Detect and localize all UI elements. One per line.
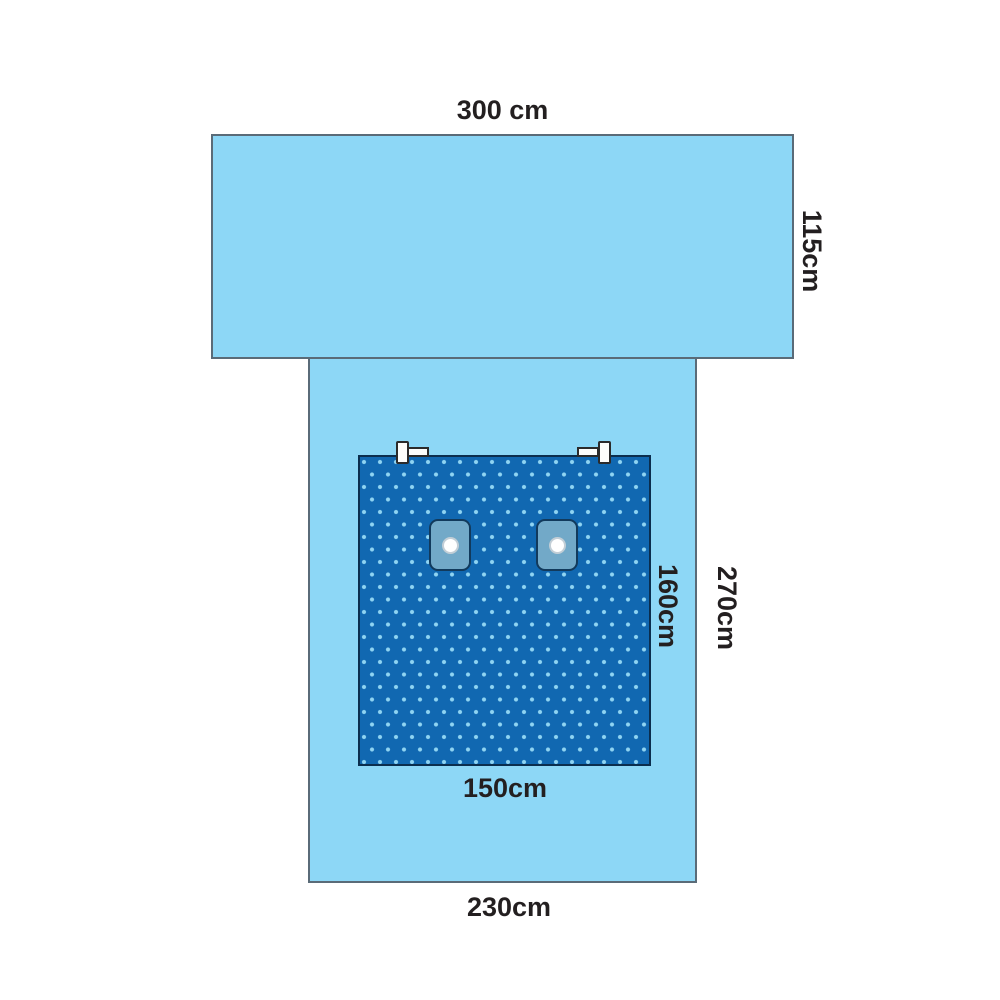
drape-dimension-diagram: 300 cm 115cm 270cm 160cm 150cm 230cm xyxy=(0,0,1000,1000)
dim-label-body-sheet-height: 270cm xyxy=(712,558,742,658)
tube-holder-clip-right-bar-icon xyxy=(577,447,599,457)
drape-top-sheet xyxy=(211,134,794,359)
dim-label-top-sheet-height: 115cm xyxy=(797,201,827,301)
fenestration-hole-right xyxy=(549,537,566,554)
dim-label-top-sheet-width: 300 cm xyxy=(211,95,794,129)
fenestration-hole-left xyxy=(442,537,459,554)
reinforced-fenestration-panel xyxy=(358,455,651,766)
tube-holder-clip-left-bar-icon xyxy=(407,447,429,457)
dim-label-body-sheet-width: 230cm xyxy=(409,892,609,926)
fenestration-patch-right xyxy=(536,519,578,571)
tube-holder-clip-right-bracket-icon xyxy=(598,441,611,464)
fenestration-patch-left xyxy=(429,519,471,571)
dim-label-panel-width: 150cm xyxy=(405,773,605,807)
dim-label-panel-height: 160cm xyxy=(653,556,683,656)
